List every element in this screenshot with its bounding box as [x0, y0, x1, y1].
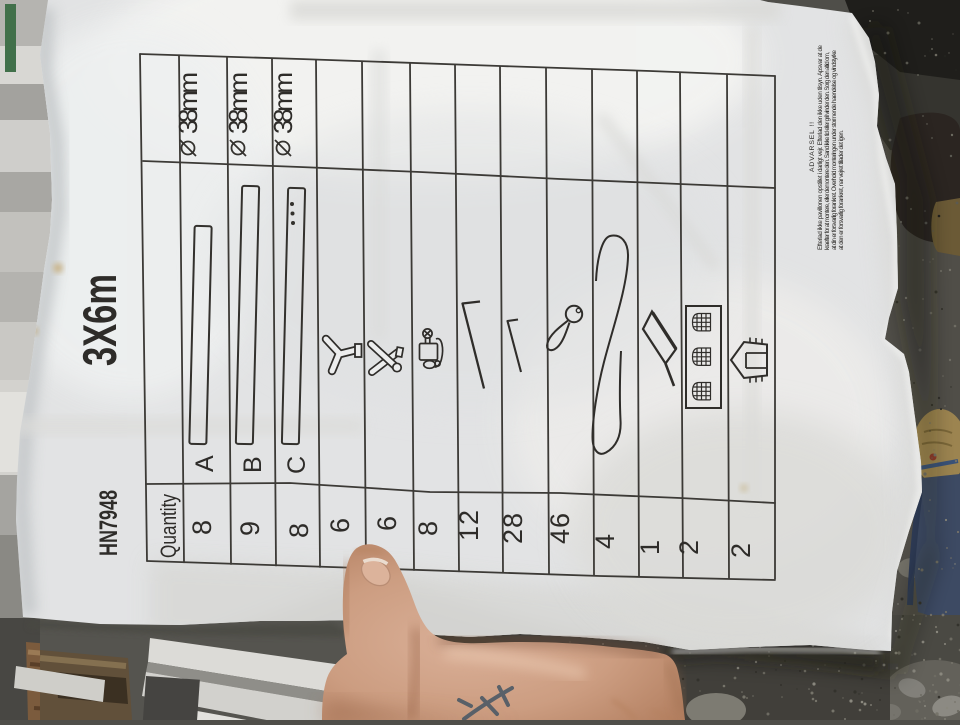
svg-text:38mm: 38mm	[223, 72, 253, 134]
svg-text:Quantity: Quantity	[156, 494, 181, 558]
svg-text:8: 8	[284, 523, 314, 538]
svg-text:38mm: 38mm	[268, 72, 298, 134]
svg-text:B: B	[239, 456, 267, 473]
svg-text:6: 6	[372, 516, 402, 531]
svg-text:Efterlad ikke pavillonen opsti: Efterlad ikke pavillonen opstillet i dar…	[817, 44, 824, 250]
svg-text:46: 46	[545, 513, 575, 544]
svg-text:3X6m: 3X6m	[73, 274, 126, 366]
svg-text:2: 2	[674, 540, 704, 555]
svg-text:8: 8	[187, 520, 217, 535]
svg-text:28: 28	[498, 513, 528, 544]
svg-text:38mm: 38mm	[173, 72, 203, 134]
svg-text:4: 4	[590, 534, 620, 549]
svg-text:1: 1	[635, 540, 665, 555]
svg-text:12: 12	[454, 510, 484, 541]
svg-text:ADVARSEL !!: ADVARSEL !!	[809, 122, 816, 172]
svg-text:A: A	[191, 455, 219, 472]
svg-text:at den er forsvarlig forankret: at den er forsvarlig forankret, nar vejr…	[838, 130, 845, 250]
svg-text:kraefter for at montere, eller: kraefter for at montere, eller demontere…	[824, 52, 831, 250]
svg-text:HN7948: HN7948	[95, 490, 123, 556]
svg-text:C: C	[283, 456, 311, 474]
svg-text:2: 2	[726, 543, 756, 558]
svg-text:at din er forsvarlig forankret: at din er forsvarlig forankret. Overhold…	[831, 49, 838, 250]
svg-text:6: 6	[325, 518, 355, 533]
svg-text:8: 8	[413, 521, 443, 536]
svg-text:9: 9	[235, 521, 265, 536]
